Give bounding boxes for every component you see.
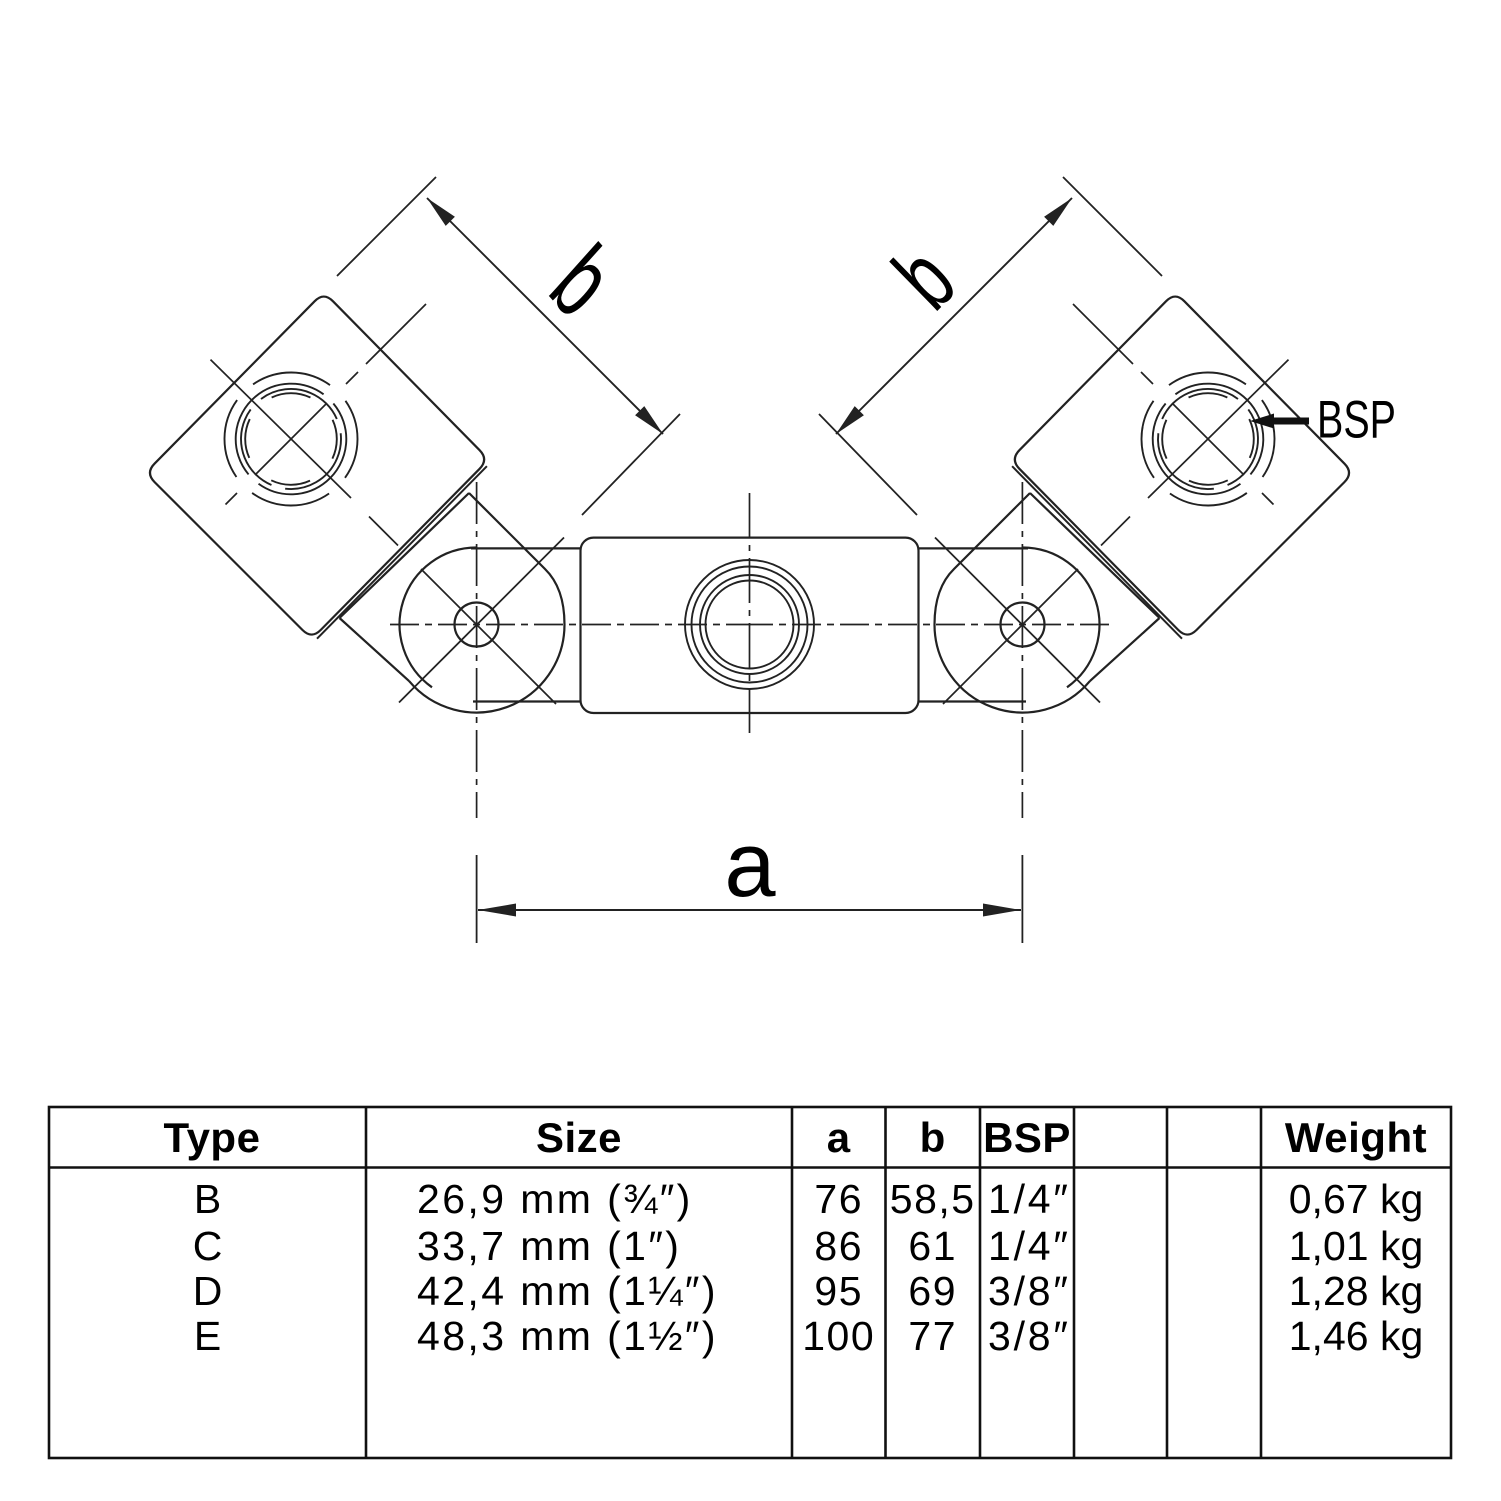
svg-text:1/4″: 1/4″ — [988, 1176, 1071, 1222]
svg-text:BSP: BSP — [1317, 391, 1396, 450]
svg-text:48,3 mm (1½″): 48,3 mm (1½″) — [417, 1313, 718, 1359]
svg-text:95: 95 — [814, 1268, 863, 1314]
svg-text:26,9 mm (¾″): 26,9 mm (¾″) — [417, 1176, 693, 1222]
svg-text:33,7 mm (1″): 33,7 mm (1″) — [417, 1223, 681, 1269]
svg-text:1,28 kg: 1,28 kg — [1289, 1268, 1424, 1314]
svg-text:1,01 kg: 1,01 kg — [1289, 1223, 1424, 1269]
svg-text:76: 76 — [814, 1176, 863, 1222]
svg-text:3/8″: 3/8″ — [988, 1268, 1071, 1314]
svg-text:a: a — [827, 1114, 851, 1161]
svg-text:61: 61 — [908, 1223, 957, 1269]
svg-text:77: 77 — [908, 1313, 957, 1359]
svg-text:1/4″: 1/4″ — [988, 1223, 1071, 1269]
svg-text:a: a — [724, 814, 776, 916]
svg-text:b: b — [920, 1114, 946, 1161]
svg-text:42,4 mm (1¼″): 42,4 mm (1¼″) — [417, 1268, 718, 1314]
svg-text:B: B — [194, 1176, 221, 1222]
svg-text:C: C — [193, 1223, 223, 1269]
svg-text:Weight: Weight — [1285, 1114, 1427, 1161]
svg-text:69: 69 — [908, 1268, 957, 1314]
svg-text:Size: Size — [536, 1114, 622, 1161]
svg-text:BSP: BSP — [983, 1114, 1071, 1161]
svg-text:58,5: 58,5 — [890, 1176, 976, 1222]
svg-text:3/8″: 3/8″ — [988, 1313, 1071, 1359]
svg-text:D: D — [193, 1268, 223, 1314]
svg-text:1,46 kg: 1,46 kg — [1289, 1313, 1424, 1359]
svg-text:0,67 kg: 0,67 kg — [1289, 1176, 1424, 1222]
svg-text:Type: Type — [164, 1114, 261, 1161]
svg-text:86: 86 — [814, 1223, 863, 1269]
svg-text:E: E — [194, 1313, 221, 1359]
svg-text:100: 100 — [802, 1313, 875, 1359]
